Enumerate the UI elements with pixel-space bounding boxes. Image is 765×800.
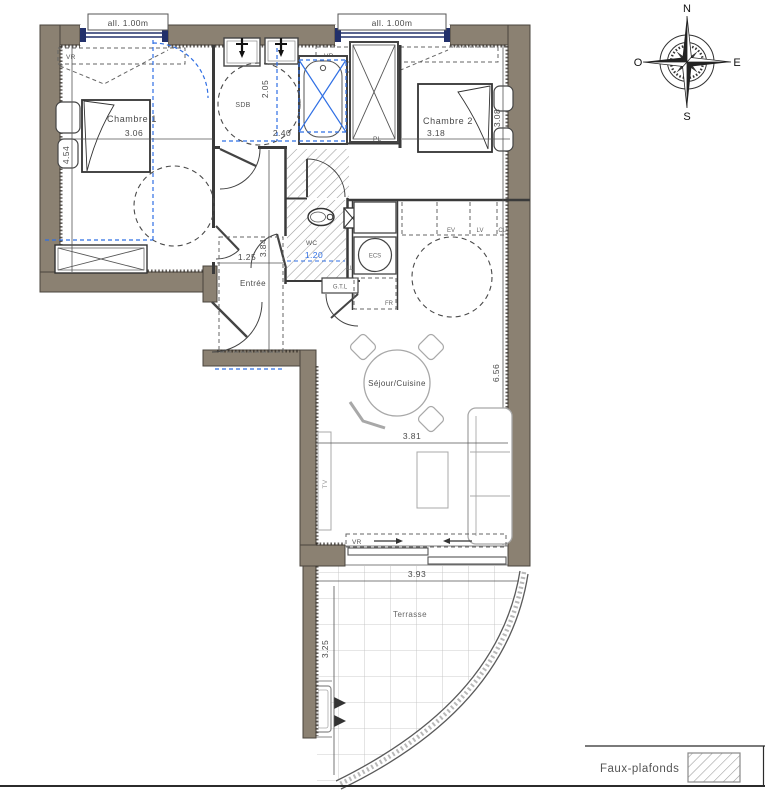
chambre2-depth: 3.08: [492, 109, 502, 127]
wall-terrace-left: [303, 566, 316, 738]
sliding-arrow-icon: [374, 538, 472, 544]
window-chambre2: all. 1.00m: [335, 14, 450, 45]
wc-clear-width: 1.20: [305, 250, 323, 260]
entree-label: Entrée: [240, 279, 266, 288]
washbasin-icon: [224, 38, 260, 66]
tv-cabinet-icon: TV: [318, 432, 331, 530]
sdb-width: 2.40: [273, 128, 291, 138]
legend-hatch-swatch: [688, 753, 740, 782]
sill-height-label: all. 1.00m: [372, 18, 413, 28]
chambre2-label: Chambre 2: [423, 116, 473, 126]
entree-depth: 3.84: [258, 239, 268, 257]
legend-false-ceiling-label: Faux-plafonds: [600, 763, 679, 775]
entree-width: 1.25: [238, 252, 256, 262]
appliance-column: ECS FR: [354, 202, 396, 309]
hallway-false-ceiling: [287, 149, 349, 198]
washbasin-icon: [265, 38, 298, 64]
sdb-depth: 2.05: [260, 80, 270, 98]
sejour-cuisine: Séjour/Cuisine TV 3.81 6.56: [316, 333, 512, 544]
wall-living-left: [300, 350, 316, 566]
chambre2-width: 3.18: [427, 128, 445, 138]
dishwasher-label: LV: [477, 228, 484, 234]
shutter-label: VR: [66, 54, 76, 61]
floor-plan-page: all. 1.00m all. 1.00m VR VR: [0, 0, 765, 800]
sofa-icon: [468, 408, 512, 544]
chambre1: Chambre 1 3.06 4.54: [45, 40, 214, 273]
sdb-label: SDB: [235, 102, 250, 109]
tv-label: TV: [322, 479, 329, 488]
coffee-table-icon: [417, 452, 448, 508]
shutter-label: VR: [352, 539, 362, 546]
window-jamb: [80, 28, 86, 42]
shutter-swing: [60, 50, 168, 84]
sejour-depth: 6.56: [491, 364, 501, 382]
sejour-label: Séjour/Cuisine: [368, 379, 426, 388]
turning-circle: [412, 237, 492, 317]
wall-entry-bottom: [203, 350, 316, 366]
sliding-panel: [428, 557, 506, 564]
cabinet-box: [354, 202, 396, 233]
gtl-label: G.T.L: [333, 285, 348, 291]
chambre1-label: Chambre 1: [107, 114, 157, 124]
wardrobe-icon: [55, 245, 147, 273]
roller-shutter-chambre1: VR: [58, 48, 185, 84]
wall-bottom-left: [40, 272, 217, 292]
closet-label: PL: [373, 136, 382, 143]
kitchen-counter: EV LV CU: [402, 202, 508, 317]
wall-bottom: [300, 545, 345, 566]
compass-rose: N S E O: [634, 3, 741, 123]
terrasse-depth: 3.25: [320, 640, 330, 658]
closet-pl: PL: [350, 42, 398, 143]
legend: Faux-plafonds: [600, 753, 740, 782]
toilet-icon: [308, 209, 334, 226]
compass-west-label: O: [634, 57, 643, 69]
terrace: [314, 566, 528, 790]
sliding-panel: [348, 548, 428, 555]
sill-height-label: all. 1.00m: [108, 18, 149, 28]
sink-label: EV: [447, 228, 455, 234]
compass-south-label: S: [683, 111, 690, 123]
sejour-width: 3.81: [403, 431, 421, 441]
window-chambre1: all. 1.00m: [80, 14, 168, 45]
wc-label: WC: [306, 240, 317, 247]
terrace-tile-grid: [317, 566, 523, 790]
terrasse-label: Terrasse: [393, 610, 427, 619]
chambre1-depth: 4.54: [61, 146, 71, 164]
washer-label: LL: [347, 266, 354, 272]
gtl-box: G.T.L: [322, 278, 358, 293]
chambre1-width: 3.06: [125, 128, 143, 138]
water-heater-label: ECS: [369, 254, 381, 260]
turning-circle: [134, 166, 214, 246]
terrasse-width: 3.93: [408, 569, 426, 579]
compass-north-label: N: [683, 3, 691, 15]
floor-plan-drawing: all. 1.00m all. 1.00m VR VR: [0, 0, 765, 800]
sdb-door: [220, 149, 260, 189]
compass-east-label: E: [733, 57, 740, 69]
fridge-label: FR: [385, 301, 394, 307]
